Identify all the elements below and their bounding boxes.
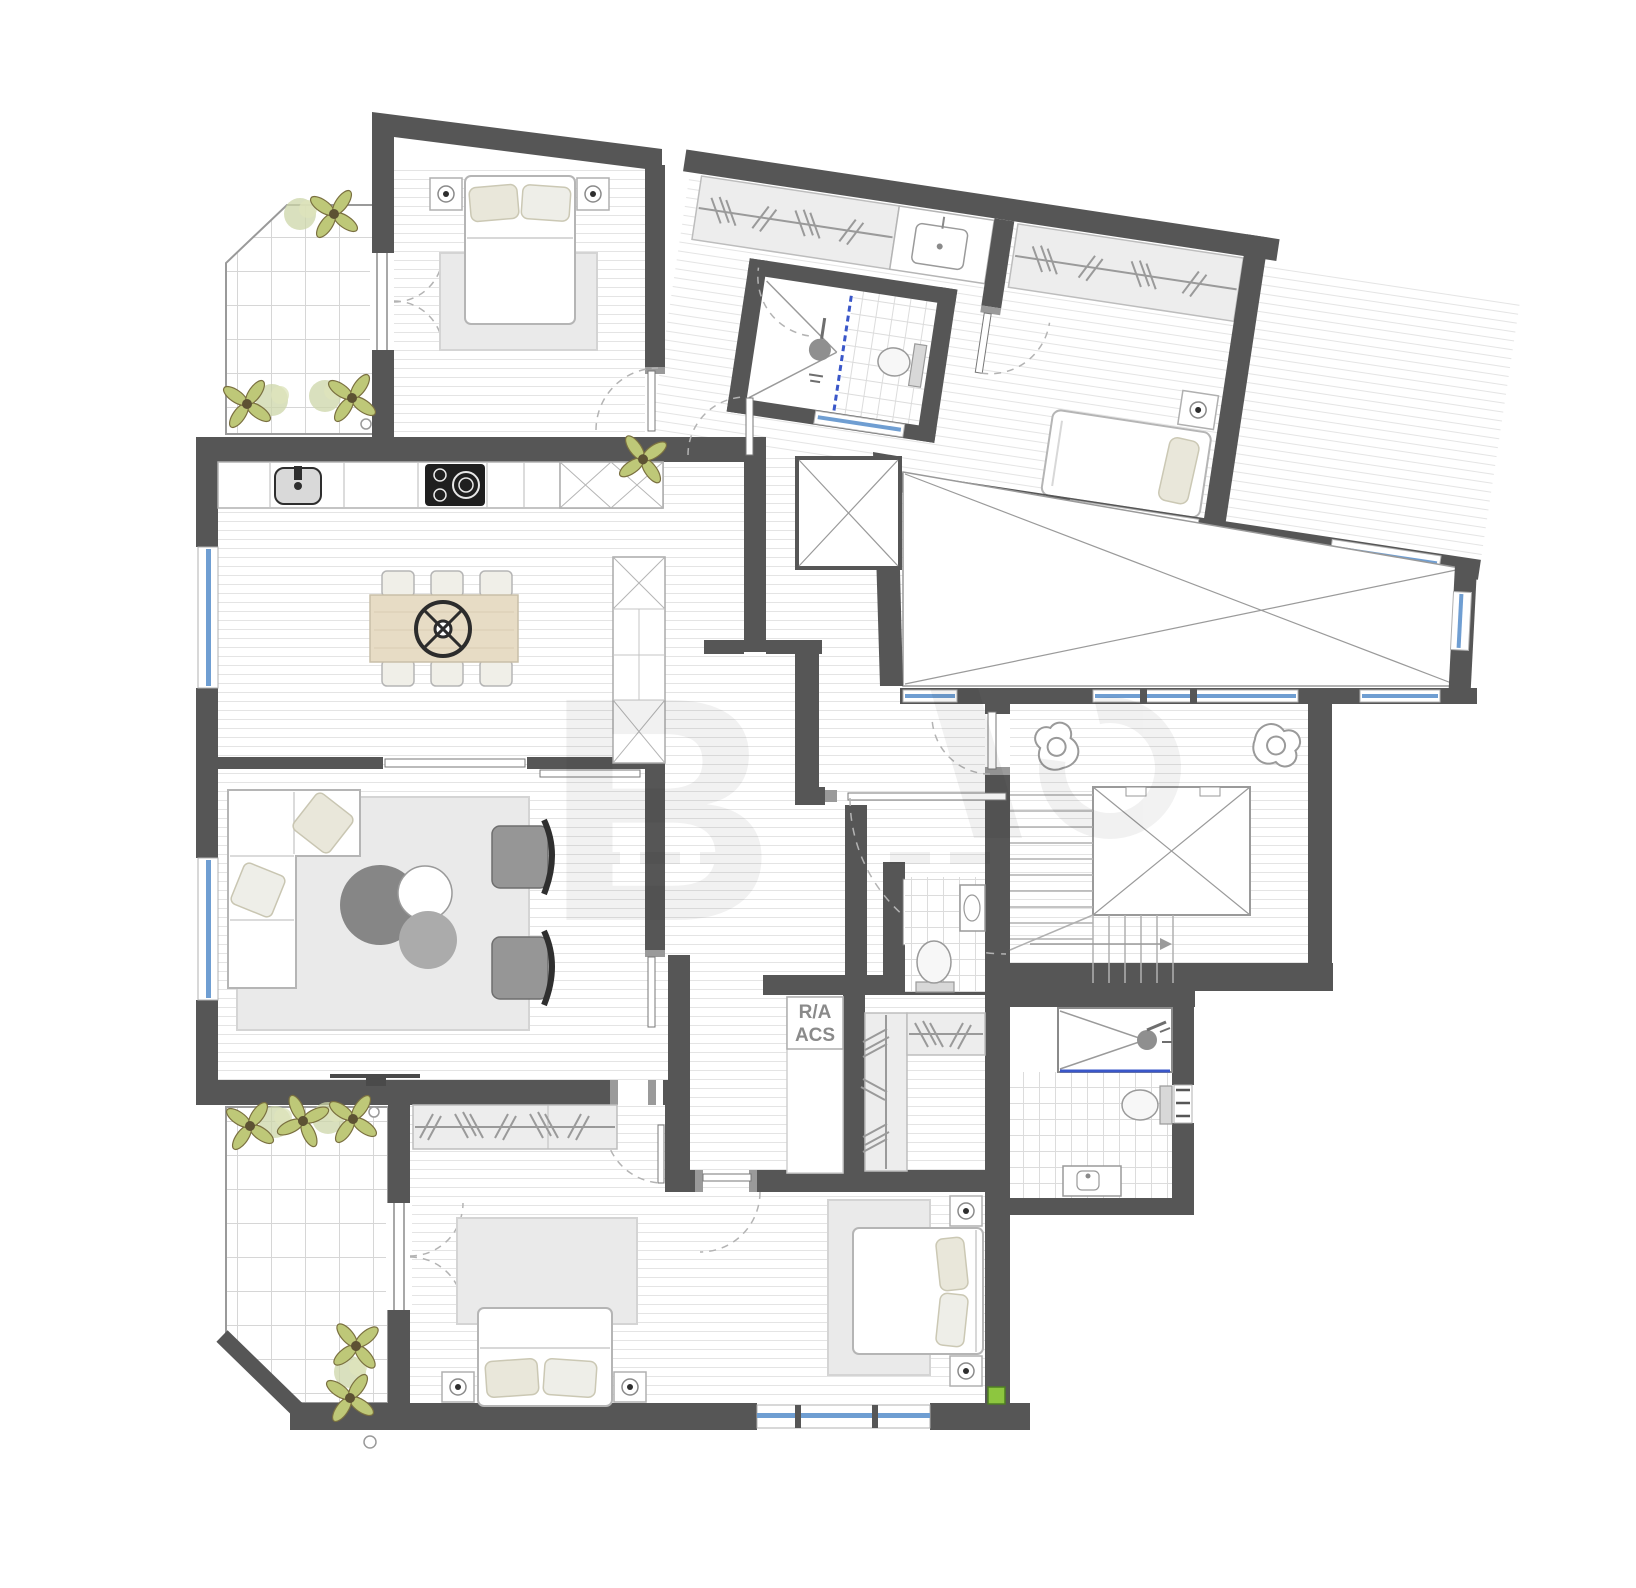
pillow-icon: [521, 184, 571, 221]
ra-label: R/A: [799, 1002, 832, 1023]
double-bed-icon: [478, 1308, 612, 1406]
stair-bottom-wall: [985, 963, 1333, 991]
window-icon: [1174, 1085, 1192, 1123]
floor-plan-drawing: R/A ACS: [0, 0, 1636, 1588]
vanity-sink-icon: [1063, 1166, 1121, 1196]
double-bed-icon: [853, 1228, 983, 1354]
wall: [372, 350, 394, 440]
pillow-icon: [469, 184, 520, 222]
bedroom-2: [828, 1196, 1005, 1404]
bathroom-1: [727, 258, 958, 443]
nightstand-icon: [430, 178, 462, 210]
kitchen-sink-icon: [275, 466, 321, 504]
technical-closet: R/A ACS: [787, 997, 843, 1173]
bedroom-1-right-wall: [645, 165, 665, 367]
pillow-icon: [543, 1358, 597, 1398]
window-icon: [198, 547, 218, 688]
bottom-outer-wall: [930, 1403, 1030, 1430]
left-outer-wall: [196, 462, 218, 547]
bathroom-2-top-wall: [985, 990, 1195, 1007]
floor-plan-page: R/A ACS: [0, 0, 1636, 1588]
window-icon: [198, 858, 218, 1000]
wardrobe-hangers-icon: [413, 1105, 617, 1149]
nightstand-icon: [950, 1196, 982, 1226]
elevator-icon: [1093, 787, 1250, 915]
bathroom-2-bottom-wall: [985, 1198, 1194, 1215]
bedroom-1: [430, 176, 609, 350]
vanity-sink-icon: [960, 885, 985, 931]
nightstand-icon: [614, 1372, 646, 1402]
living-bottom-wall: [196, 1080, 617, 1105]
left-outer-wall: [196, 688, 218, 858]
svg-text:B: B: [545, 630, 776, 988]
shower-icon: [1058, 1008, 1172, 1072]
bathroom-2-right-wall: [1172, 1007, 1194, 1085]
wc-wall: [845, 805, 867, 995]
pillow-icon: [935, 1293, 968, 1348]
nightstand-bedroom-4: [1178, 390, 1219, 429]
shaft-wall: [795, 654, 819, 794]
dressing-vanity-sink: [890, 206, 994, 284]
armchair-icon: [492, 931, 552, 1005]
window-icon: [757, 1405, 930, 1428]
partition-wall: [218, 757, 383, 769]
window-icon: [1450, 592, 1471, 651]
hall-bottom-wall: [795, 787, 825, 805]
green-marker-icon: [988, 1387, 1005, 1404]
wc: [905, 877, 985, 992]
terrace-bottom-left: [222, 1107, 388, 1448]
vent-shaft: [797, 458, 900, 568]
stair-right-wall: [1308, 700, 1332, 970]
bedroom-3-left-wall: [388, 1105, 410, 1203]
nightstand-icon: [577, 178, 609, 210]
kitchen-top-wall: [196, 437, 766, 462]
bedroom-2-top-wall: [665, 1170, 695, 1192]
closet-wall: [843, 995, 865, 1173]
pillow-icon: [485, 1358, 539, 1398]
hall-wall: [744, 437, 766, 652]
nightstand-icon: [950, 1356, 982, 1386]
bathroom-2: [1010, 1008, 1172, 1198]
window-icon: [1360, 690, 1440, 702]
double-bed-icon: [465, 176, 575, 324]
cooktop-icon: [425, 464, 485, 506]
dining-table-icon: [370, 571, 518, 686]
nightstand-icon: [442, 1372, 474, 1402]
acs-label: ACS: [795, 1025, 835, 1046]
armchair-icon: [492, 820, 552, 894]
pillow-icon: [935, 1237, 968, 1292]
